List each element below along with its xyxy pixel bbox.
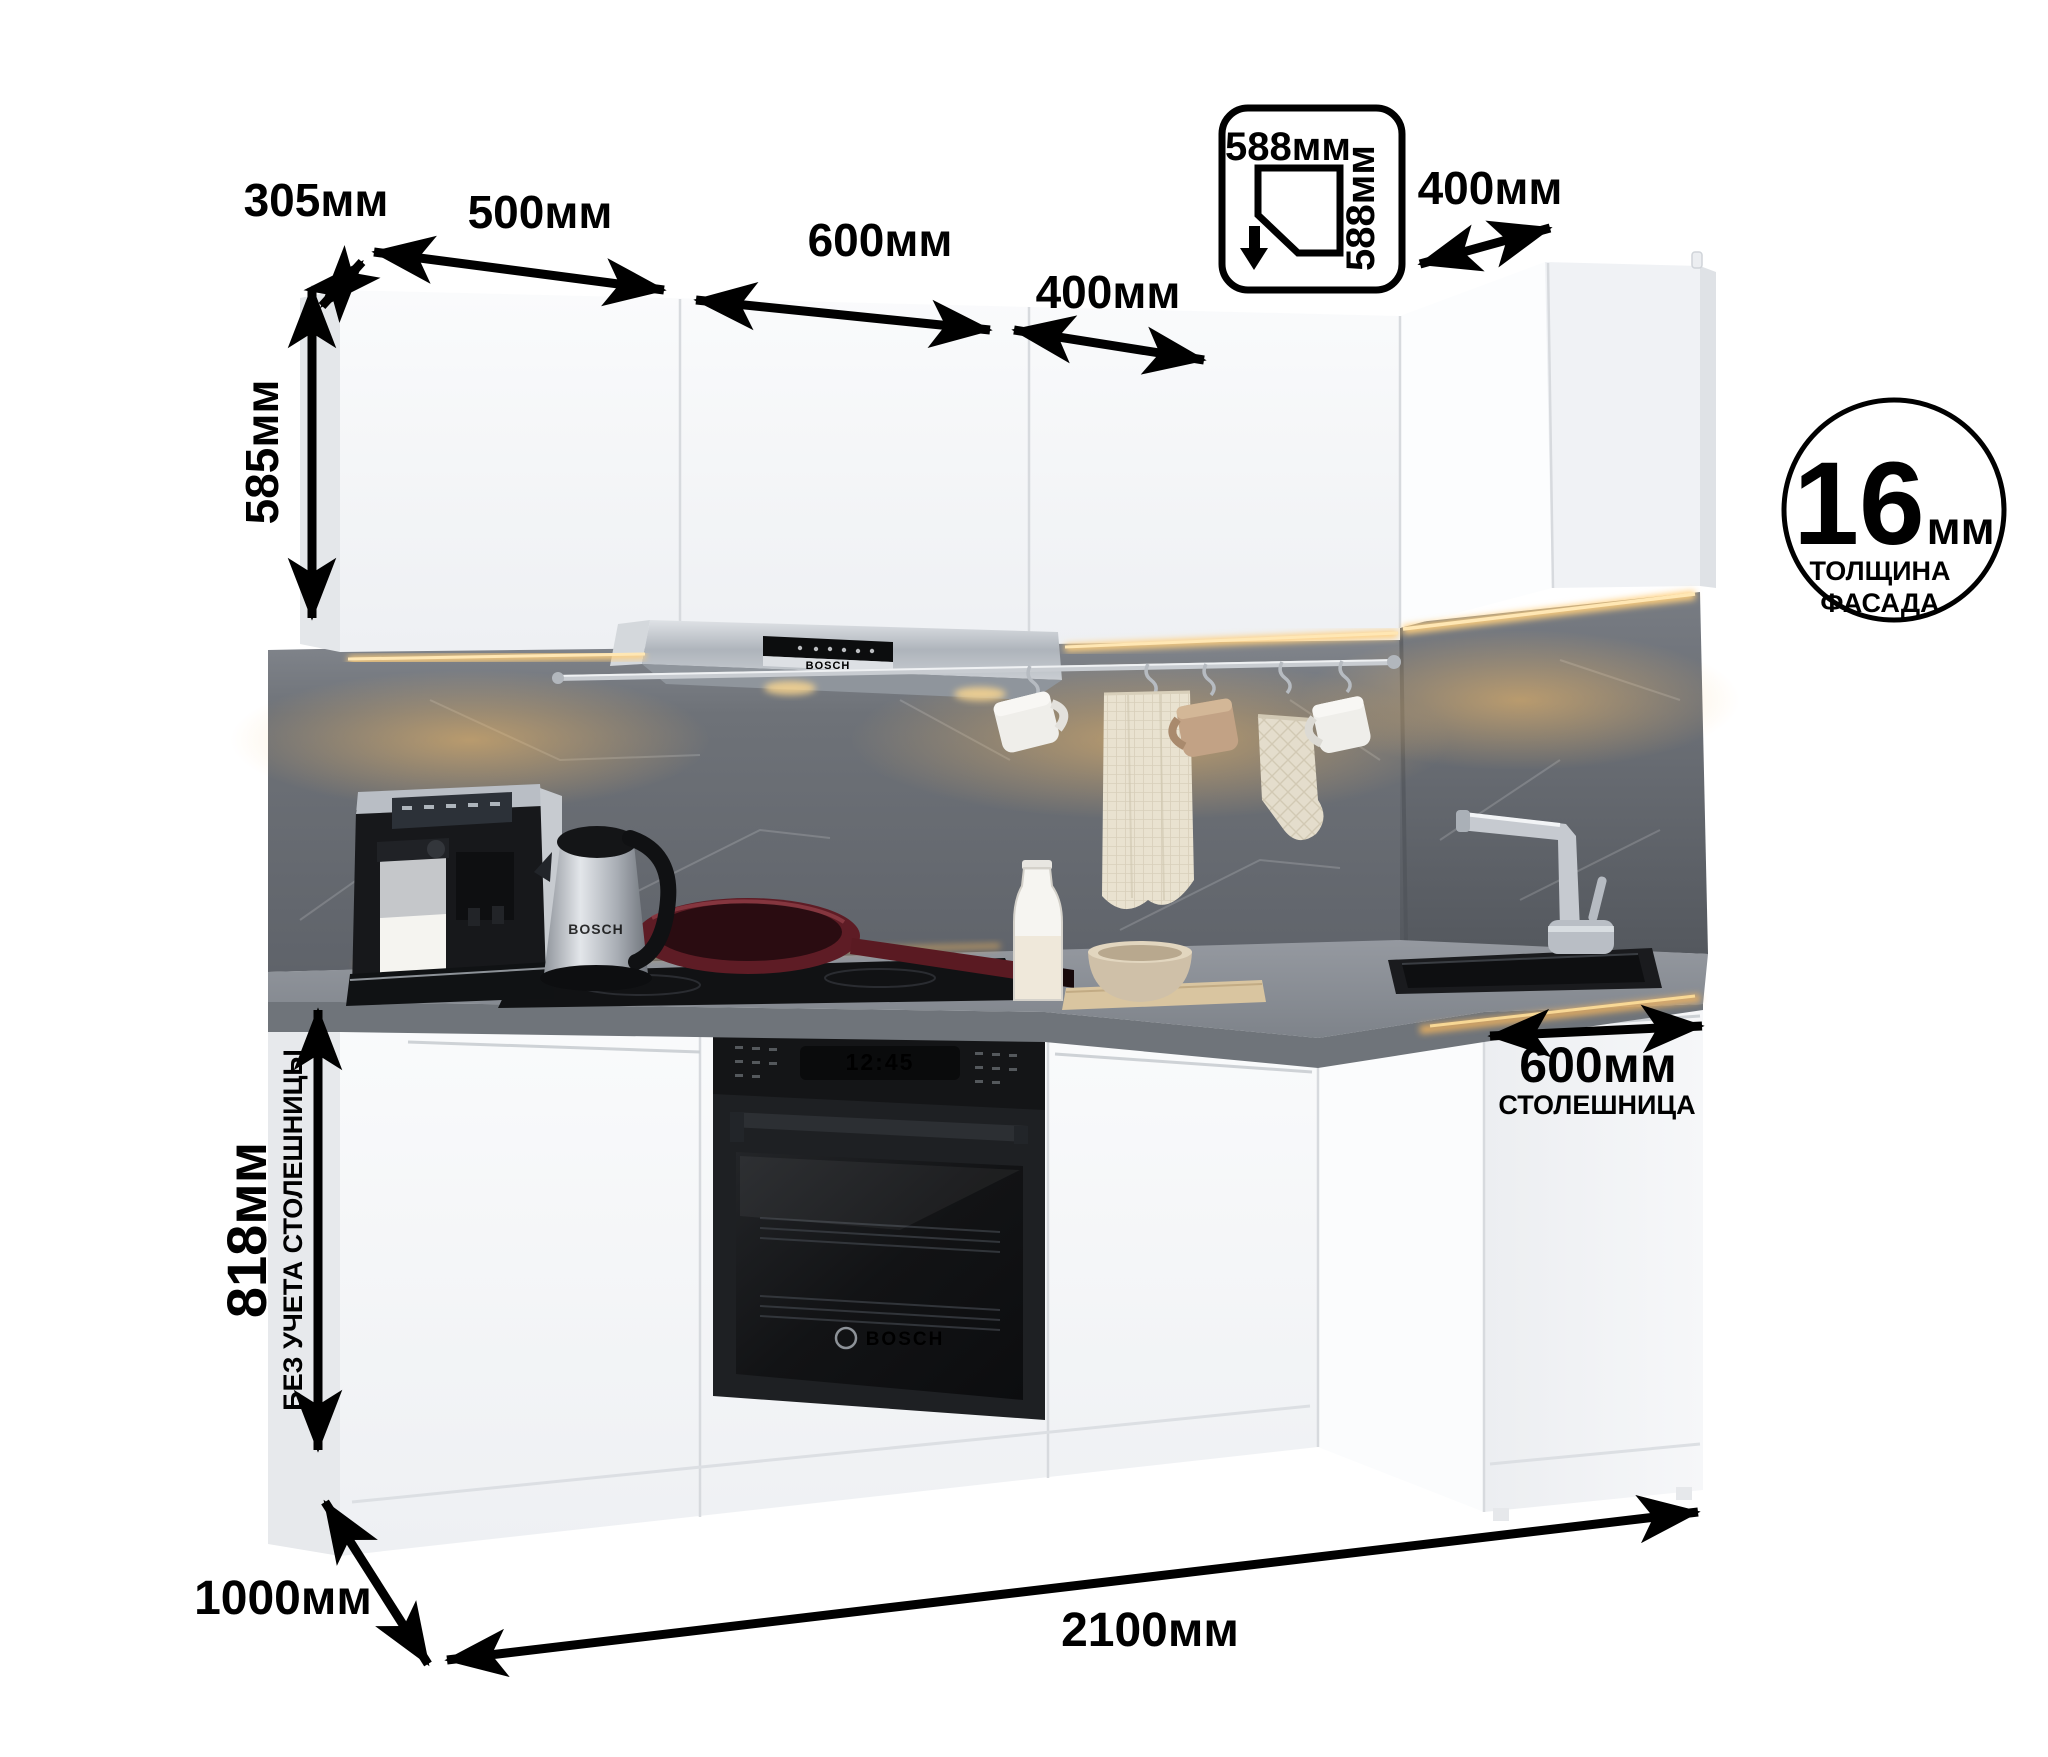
base-corner-front <box>1318 1010 1484 1512</box>
cabinet-foot <box>1493 1508 1509 1521</box>
oven-brand: BOSCH <box>866 1329 945 1350</box>
dim-width-500-label: 500мм <box>468 186 613 238</box>
kitchen-dimension-diagram: 12:45 BOSCH <box>0 0 2048 1757</box>
dim-upper-depth-label: 305мм <box>244 174 389 226</box>
wall-right-side-panel <box>1700 266 1716 588</box>
dim-base-height-note: БЕЗ УЧЕТА СТОЛЕШНИЦЫ <box>278 1049 308 1411</box>
wall-cabinets <box>300 252 1716 652</box>
wall-left-side-panel <box>300 290 340 652</box>
wall-right-cabinet <box>1545 262 1700 588</box>
facade-thickness-badge: 16мм ТОЛЩИНА ФАСАДА <box>1784 400 2004 620</box>
cabinet-foot <box>1676 1487 1692 1500</box>
facade-badge-line1: ТОЛЩИНА <box>1809 556 1950 586</box>
dim-width-600-label: 600мм <box>808 214 953 266</box>
dim-width-400-label: 400мм <box>1036 266 1181 318</box>
dim-worktop-label: 600мм <box>1519 1037 1676 1093</box>
corner-cabinet-icon: 588мм 588мм <box>1222 108 1402 290</box>
dim-total-width-label: 2100мм <box>1061 1604 1239 1657</box>
facade-badge-line2: ФАСАДА <box>1820 588 1939 618</box>
dim-right-width-arrow <box>1420 228 1550 264</box>
dim-floor-depth-label: 1000мм <box>194 1572 372 1625</box>
wall-corner-cabinet <box>1400 262 1552 628</box>
dim-upper-height-label: 585мм <box>236 380 288 525</box>
corner-depth-label: 588мм <box>1339 145 1383 271</box>
corner-width-label: 588мм <box>1225 125 1351 169</box>
wall-left-run <box>340 290 1400 652</box>
oven-clock: 12:45 <box>846 1049 915 1075</box>
dim-base-height-label: 818мм <box>215 1142 278 1318</box>
kettle-brand: BOSCH <box>568 921 624 937</box>
coffee-machine <box>346 784 562 1006</box>
oven: 12:45 BOSCH <box>713 1025 1045 1420</box>
dim-right-width-label: 400мм <box>1418 162 1563 214</box>
kitchen-render: 12:45 BOSCH <box>0 0 2048 1757</box>
dim-width-500-arrow <box>374 252 664 290</box>
dim-worktop-sublabel: СТОЛЕШНИЦА <box>1498 1090 1695 1120</box>
